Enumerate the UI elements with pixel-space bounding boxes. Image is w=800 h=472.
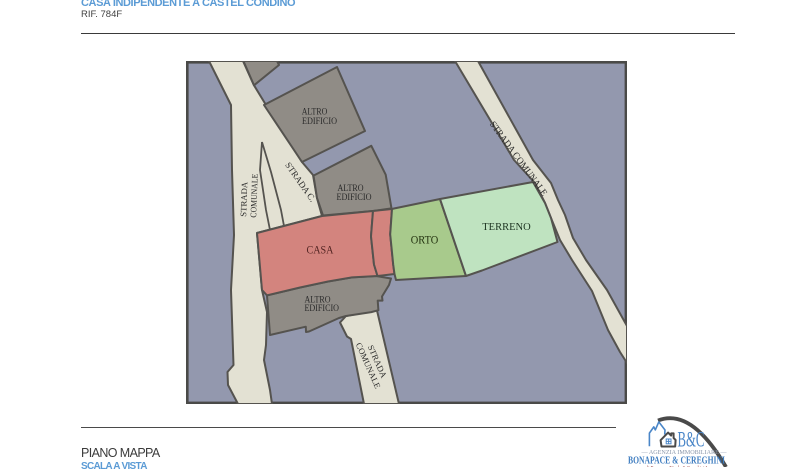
svg-text:EDIFICIO: EDIFICIO — [337, 193, 372, 203]
svg-text:ORTO: ORTO — [411, 235, 439, 247]
svg-text:CASA: CASA — [307, 243, 334, 257]
svg-text:TERRENO: TERRENO — [482, 221, 531, 233]
svg-text:EDIFICIO: EDIFICIO — [305, 304, 340, 314]
svg-text:ALTRO: ALTRO — [302, 108, 328, 118]
svg-text:COMUNALE: COMUNALE — [248, 173, 260, 217]
svg-text:BONAPACE & CEREGHINI: BONAPACE & CEREGHINI — [628, 454, 725, 466]
svg-text:EDIFICIO: EDIFICIO — [302, 117, 337, 127]
svg-text:B&C: B&C — [678, 427, 705, 451]
